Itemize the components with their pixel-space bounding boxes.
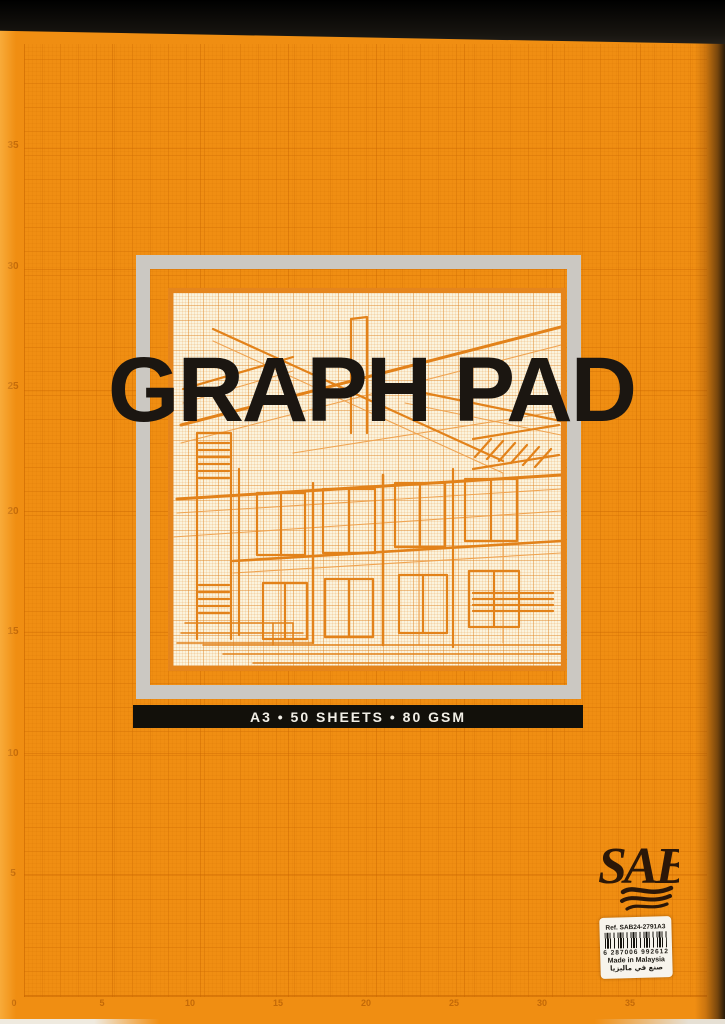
cover-title: GRAPH PAD bbox=[108, 344, 635, 436]
pad-binding-strip bbox=[0, 0, 725, 44]
brand-text: SAB bbox=[598, 838, 679, 895]
spec-text: A3 • 50 SHEETS • 80 GSM bbox=[250, 709, 466, 725]
ruler-number-bottom: 15 bbox=[269, 998, 287, 1008]
barcode-sticker: Ref. SAB24-2791A3 6 287006 992612 Made i… bbox=[599, 916, 673, 979]
ruler-number-bottom: 25 bbox=[445, 998, 463, 1008]
photo-bottom-edge bbox=[0, 1019, 725, 1024]
ruler-number-bottom: 5 bbox=[93, 998, 111, 1008]
sab-logo-graphic: SAB bbox=[597, 833, 679, 919]
logo-waves-icon bbox=[622, 888, 671, 909]
spec-bar: A3 • 50 SHEETS • 80 GSM bbox=[133, 705, 583, 728]
photo-right-shadow bbox=[695, 0, 725, 1024]
ruler-number-bottom: 30 bbox=[533, 998, 551, 1008]
ruler-number-bottom: 10 bbox=[181, 998, 199, 1008]
sab-brand-logo: SAB bbox=[597, 833, 679, 919]
graph-pad-cover-photo: 35 30 25 20 15 10 5 0 5 10 15 20 25 30 3… bbox=[0, 0, 725, 1024]
ruler-number-bottom: 35 bbox=[621, 998, 639, 1008]
barcode-icon bbox=[605, 931, 667, 949]
ruler-number-bottom: 20 bbox=[357, 998, 375, 1008]
photo-left-highlight bbox=[0, 28, 16, 1024]
made-in-arabic-text: صنع في ماليزيا bbox=[610, 963, 663, 972]
